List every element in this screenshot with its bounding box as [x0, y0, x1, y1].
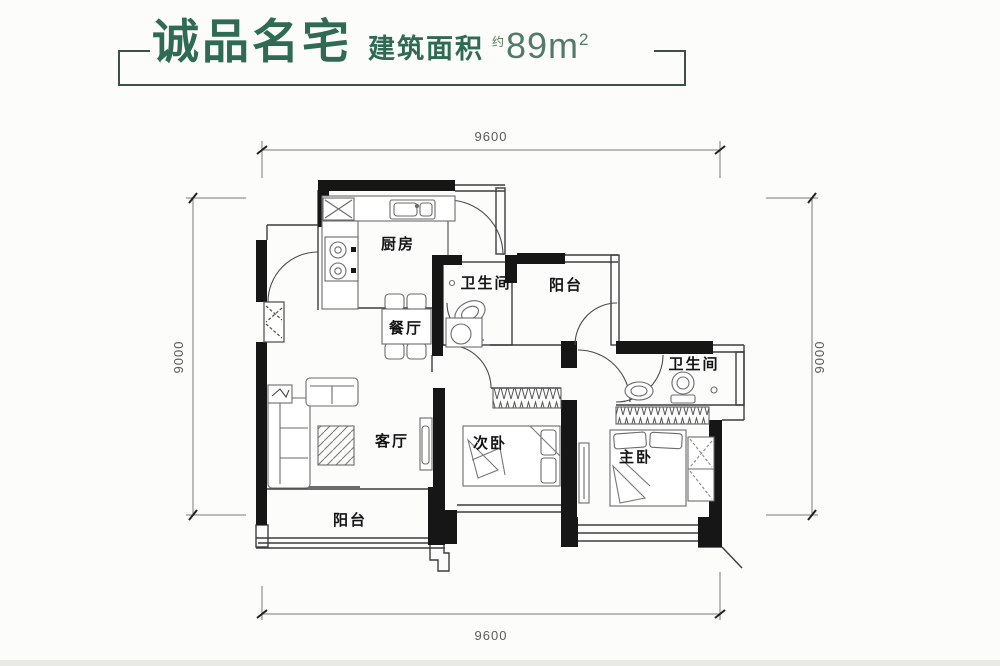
area-approx-mark: 约 [492, 33, 504, 50]
label-balcony-top: 阳台 [549, 276, 583, 294]
label-balcony-bottom: 阳台 [333, 511, 367, 529]
left-window [264, 302, 284, 342]
label-bedroom-2: 次卧 [473, 434, 507, 452]
master-furniture [579, 430, 714, 506]
area-sup: 2 [579, 30, 589, 49]
dimension-top [257, 141, 725, 178]
dimension-left [186, 193, 246, 520]
dimension-right [766, 193, 818, 520]
area-label: 建筑面积 [368, 27, 484, 66]
label-bathroom-1: 卫生间 [460, 274, 511, 292]
dim-left-value: 9000 [171, 341, 186, 374]
label-living: 客厅 [374, 432, 409, 450]
dimension-bottom [257, 572, 725, 620]
bathroom2-fixtures [625, 372, 717, 403]
dim-top-value: 9600 [475, 129, 508, 144]
area-value: 89m2 [506, 25, 590, 67]
area-number: 89m [506, 25, 579, 66]
page-title: 诚品名宅 [152, 16, 352, 68]
dim-right-value: 9000 [812, 341, 827, 374]
dim-bottom-value: 9600 [475, 628, 508, 643]
closets [493, 388, 709, 424]
label-master: 主卧 [619, 448, 653, 466]
title-row: 诚品名宅 建筑面积 约 89m2 [152, 16, 590, 68]
label-kitchen: 厨房 [381, 235, 415, 253]
bottom-edge-strip [0, 660, 1000, 666]
label-dining: 餐厅 [389, 319, 423, 337]
label-bathroom-2: 卫生间 [668, 355, 719, 373]
floorplan-drawing: 9600 9600 9000 9000 [0, 0, 1000, 666]
